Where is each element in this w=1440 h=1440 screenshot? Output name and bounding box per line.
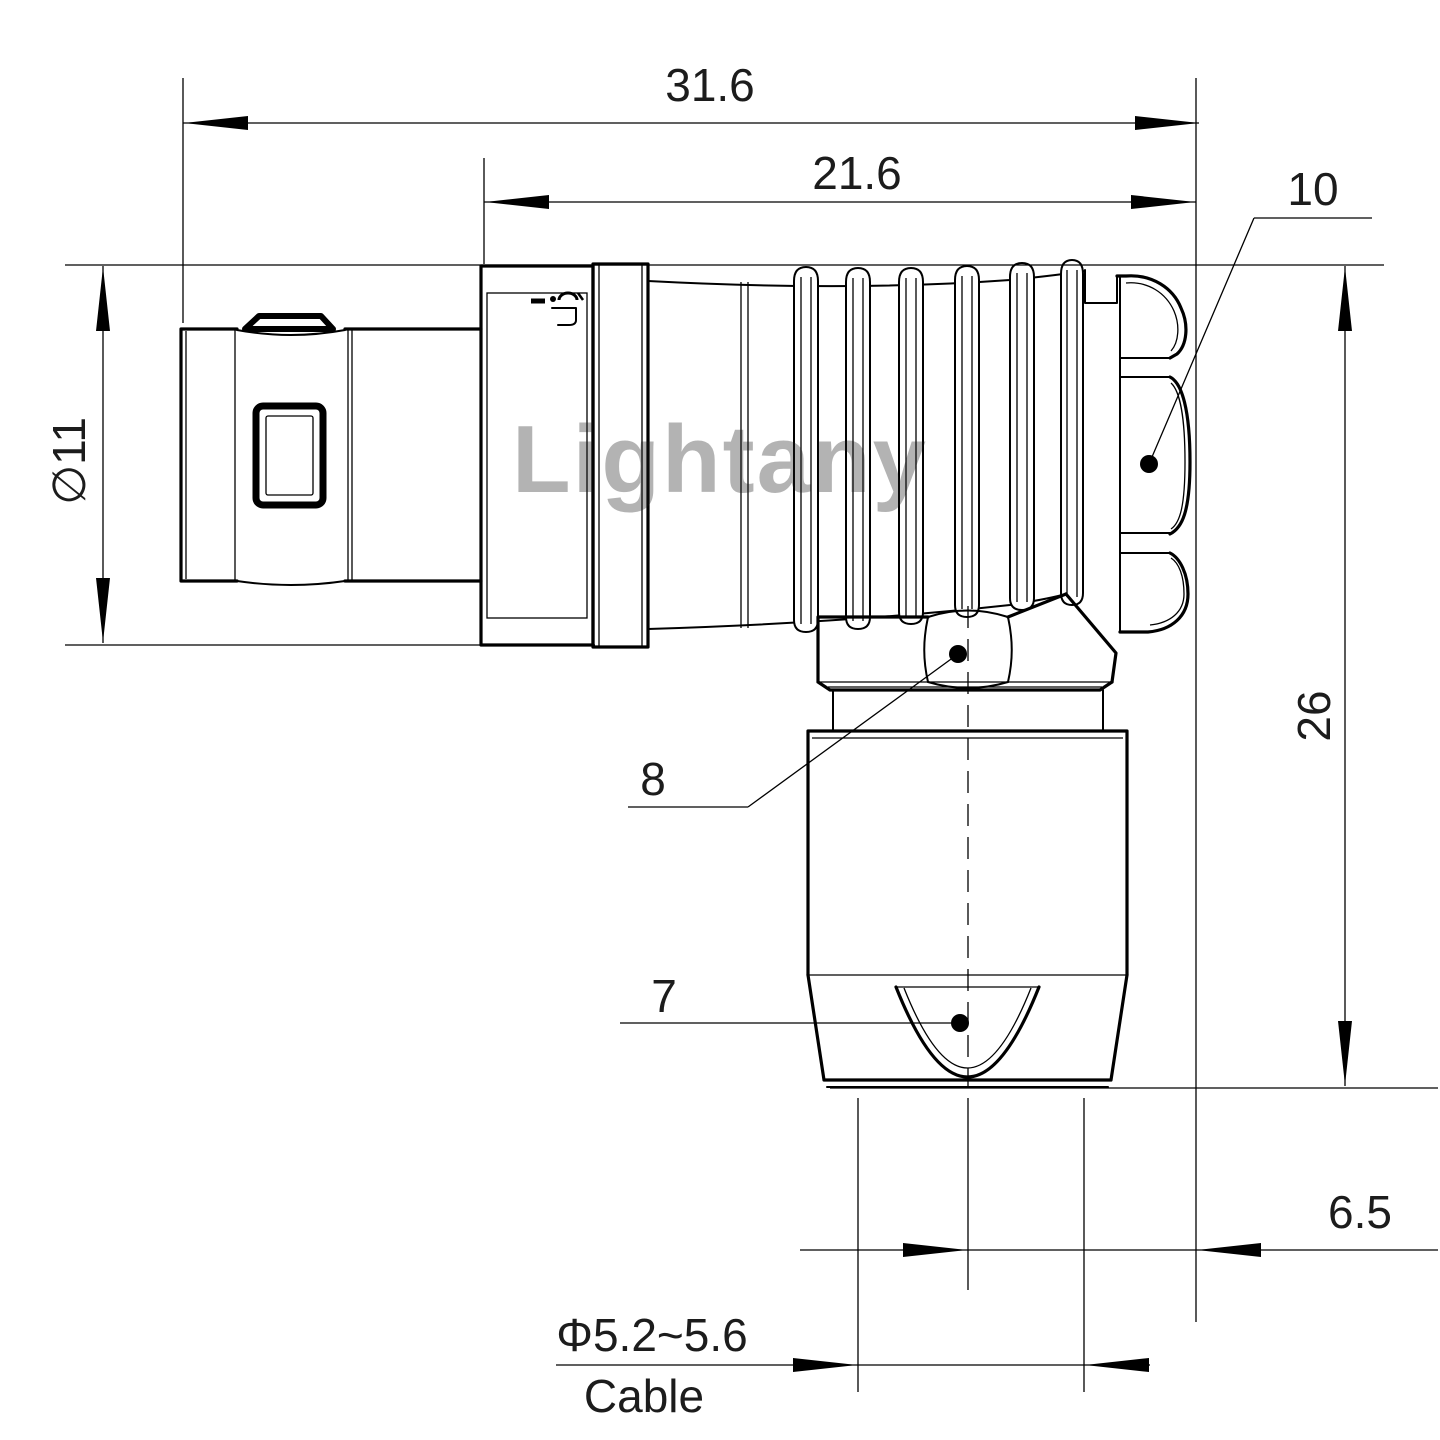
polarizing-key	[245, 316, 333, 329]
part-label-cable-bushing: 7	[651, 970, 677, 1022]
dim-elbow-offset-value: 6.5	[1328, 1186, 1392, 1238]
leader-dot-cable-bushing	[951, 1014, 969, 1032]
dim-cable-diameter-value: Φ5.2~5.6	[556, 1309, 747, 1361]
dim-height-value: 26	[1288, 690, 1340, 741]
part-label-coupling-nut: 10	[1287, 163, 1338, 215]
leader-dot-coupling-nut	[1140, 455, 1158, 473]
connector-engineering-drawing: Lightany 31.6 21.6	[0, 0, 1440, 1440]
part-label-hex-nut: 8	[640, 753, 666, 805]
technical-drawing-page: Lightany 31.6 21.6	[0, 0, 1440, 1440]
dim-total-length-value: 31.6	[665, 59, 755, 111]
leader-dot-hex-nut	[949, 645, 967, 663]
watermark: Lightany	[512, 406, 928, 513]
dim-plug-diameter-value: ∅11	[43, 417, 95, 505]
dim-body-length-value: 21.6	[812, 147, 902, 199]
dim-cable-label: Cable	[584, 1370, 704, 1422]
drawing-sheet	[0, 0, 1440, 1440]
